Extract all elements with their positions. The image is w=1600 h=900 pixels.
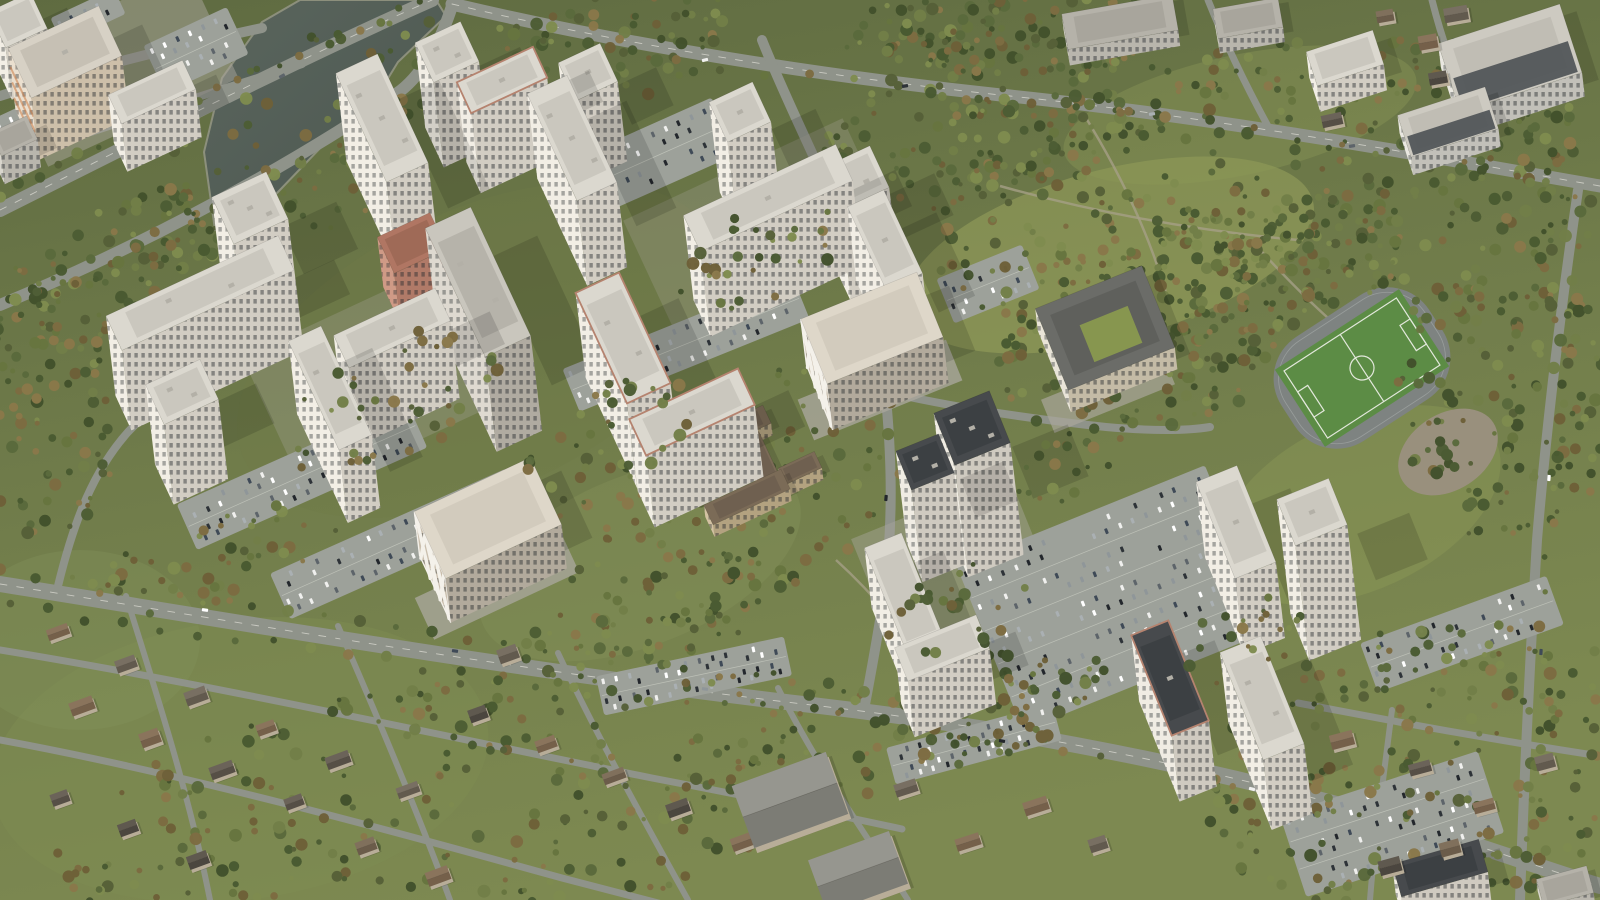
aerial-render-scene (0, 0, 1600, 900)
car (1539, 649, 1543, 655)
car (884, 495, 888, 501)
car (1547, 475, 1551, 481)
aerial-render (0, 0, 1600, 900)
